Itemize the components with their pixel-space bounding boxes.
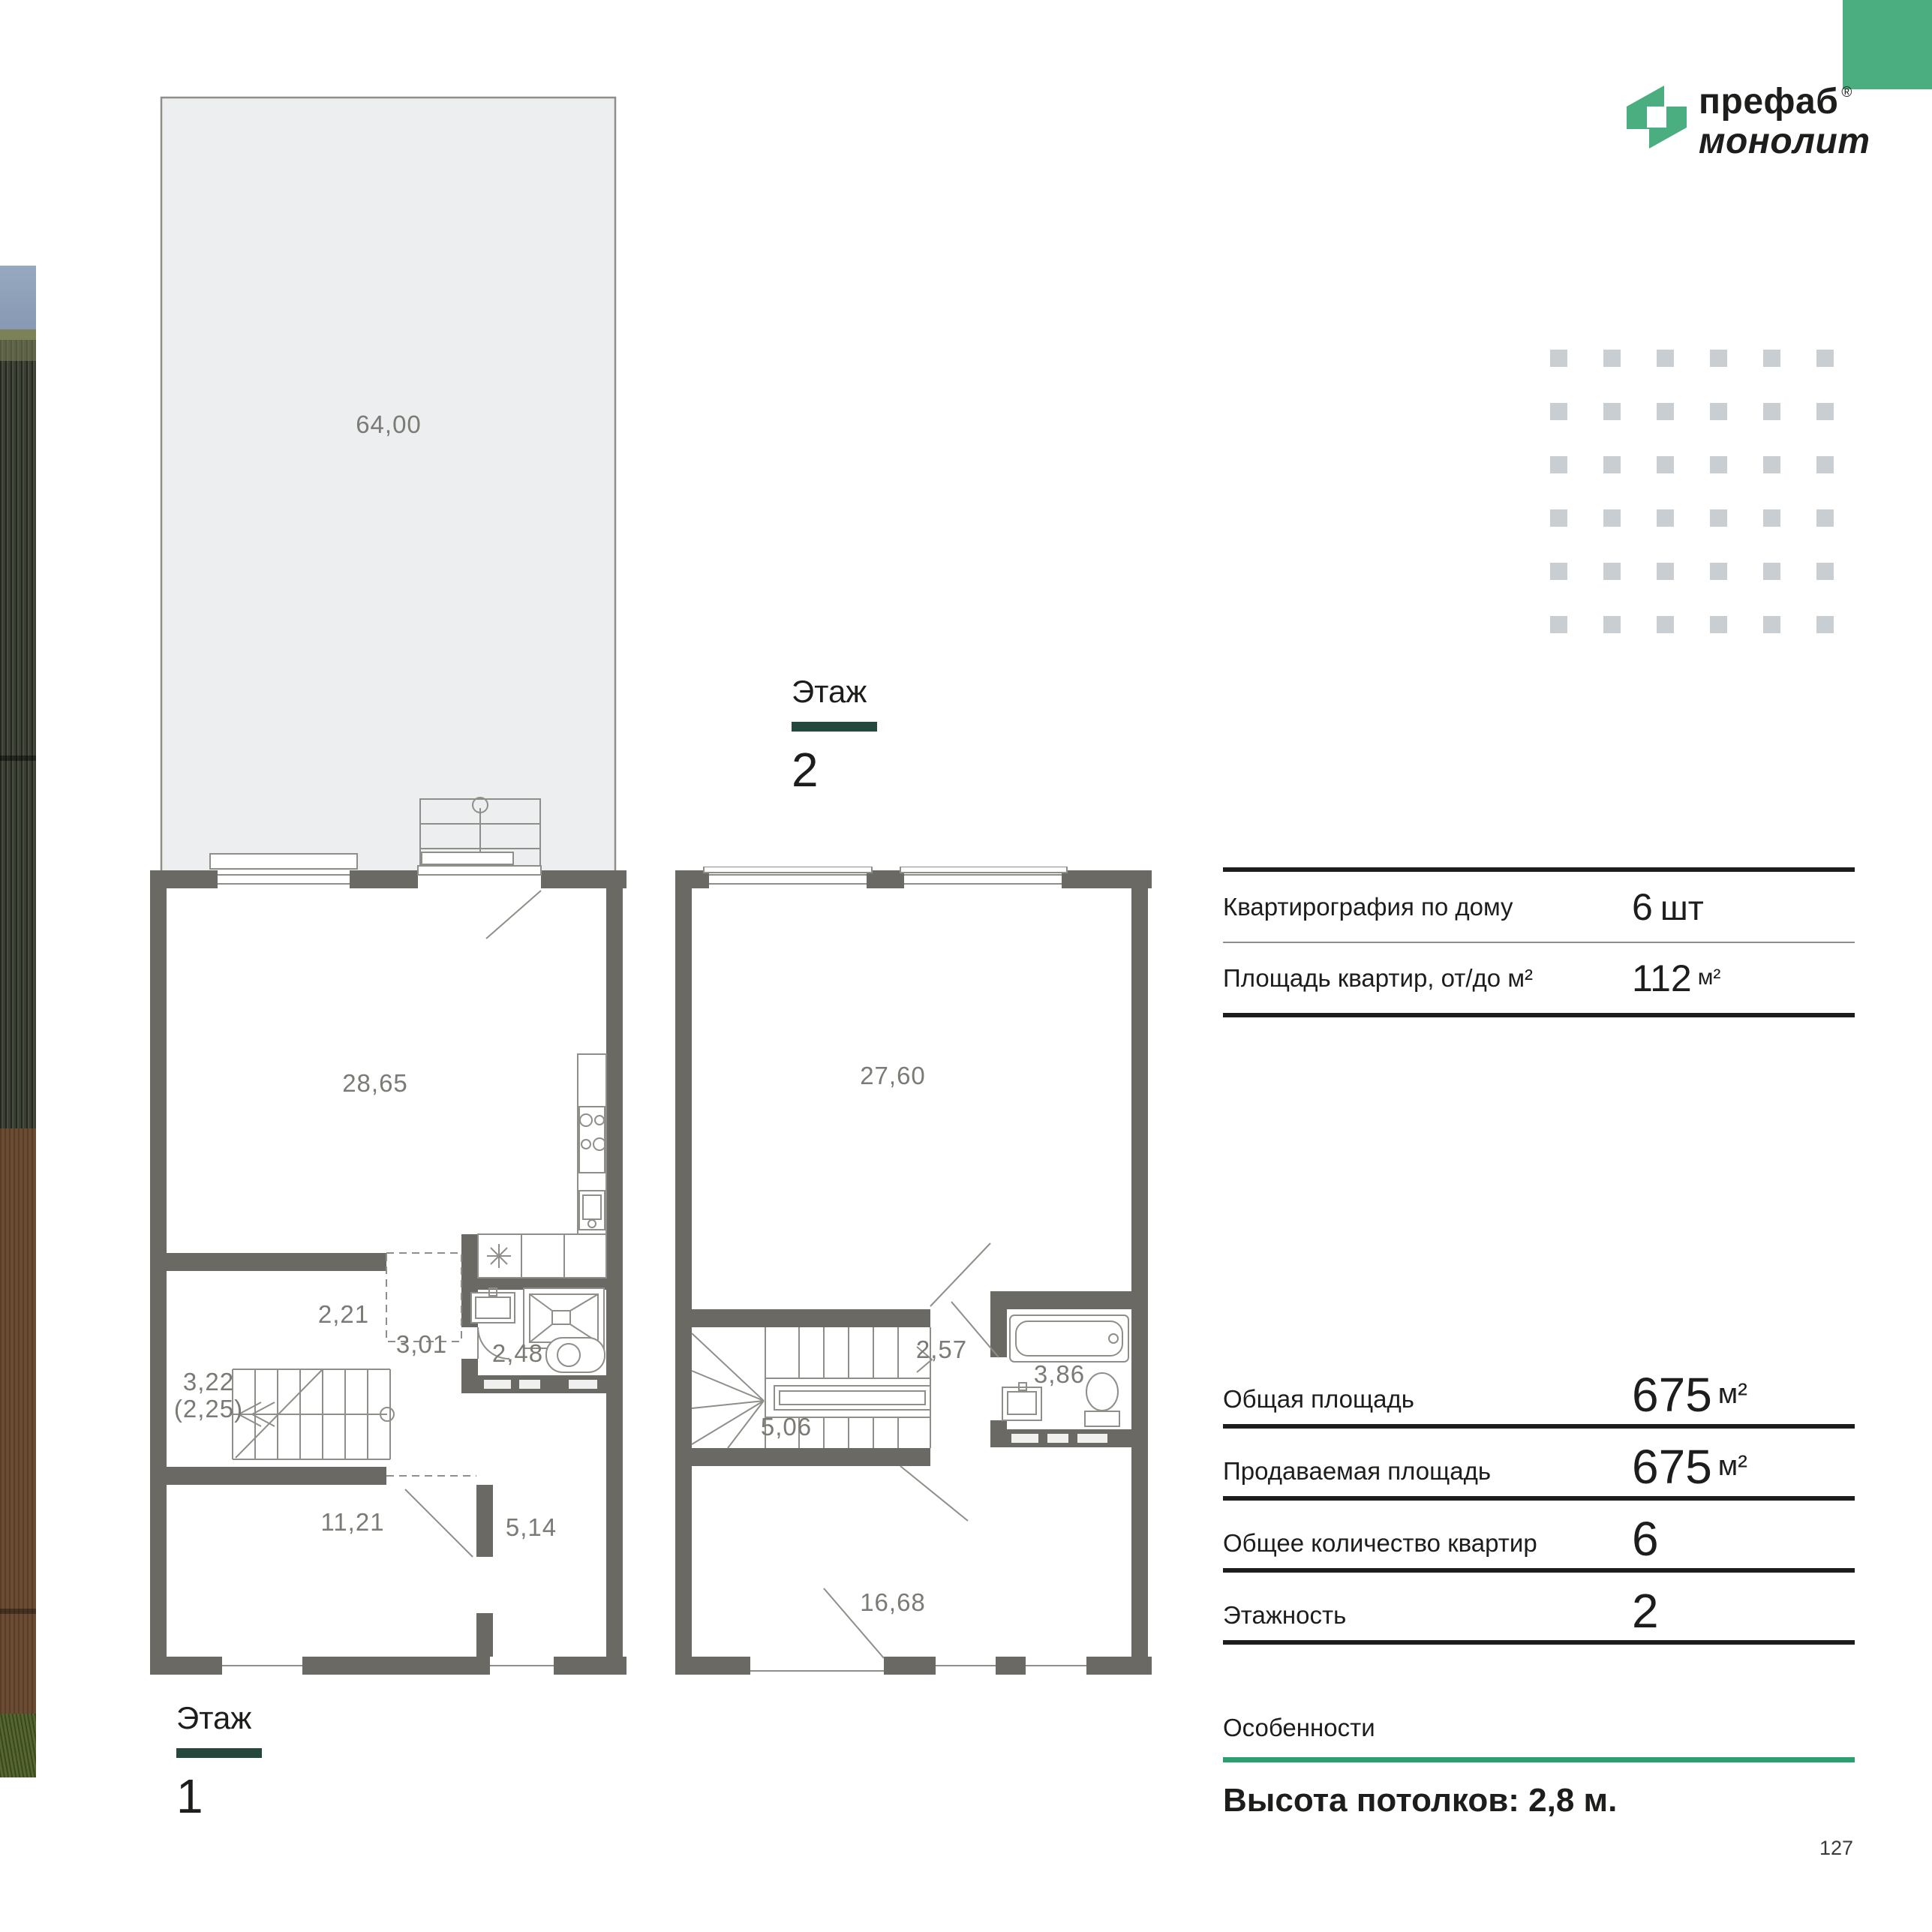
floor-1-underline [176, 1748, 262, 1758]
room-area-label: 2,57 [916, 1336, 967, 1363]
features-title: Особенности [1223, 1714, 1855, 1742]
dot-square [1603, 616, 1621, 633]
floor-2-underline [792, 722, 877, 732]
dot-square [1710, 563, 1727, 580]
brand-name-line2: монолит [1699, 124, 1870, 160]
spec-label: Продаваемая площадь [1223, 1457, 1632, 1490]
spec-label: Этажность [1223, 1601, 1632, 1634]
spec-row-sellable-area: Продаваемая площадь 675м² [1223, 1429, 1855, 1501]
plan-floor-1: 64,00 [150, 94, 626, 1677]
dot-square [1550, 616, 1567, 633]
room-area-label: 5,06 [761, 1413, 812, 1441]
dot-square [1550, 563, 1567, 580]
dot-square [1657, 509, 1674, 527]
spec-row-storeys: Этажность 2 [1223, 1573, 1855, 1645]
brand-logo: префаб® монолит [1627, 84, 1870, 160]
brand-logo-icon [1627, 84, 1687, 150]
dot-square [1816, 563, 1834, 580]
dot-square [1550, 403, 1567, 420]
dot-square [1816, 616, 1834, 633]
floor-label-title: Этаж [176, 1700, 262, 1736]
bathtub-icon [1010, 1315, 1128, 1362]
stove-icon [579, 1107, 605, 1173]
floor-label-title: Этаж [792, 674, 877, 710]
bath-sink-icon [471, 1288, 515, 1323]
spec-table-top: Квартирография по дому 6шт Площадь кварт… [1223, 867, 1855, 1017]
dot-square [1603, 403, 1621, 420]
room-area-label: 3,01 [396, 1330, 447, 1358]
plan-floor-2: 27,60 2,57 3,86 5,06 16,68 [675, 867, 1152, 1677]
dot-square [1550, 350, 1567, 367]
dot-square [1763, 456, 1780, 473]
features-underline [1223, 1757, 1855, 1762]
dot-square [1763, 403, 1780, 420]
dot-square [1763, 563, 1780, 580]
photo-grass [0, 1714, 36, 1777]
door-leaf-bedroom [900, 1466, 968, 1521]
windows-floor-2 [704, 867, 1086, 1675]
bath-sink-icon [1002, 1383, 1041, 1420]
dot-square [1710, 350, 1727, 367]
floor-2-number: 2 [792, 742, 877, 798]
room-area-label: 16,68 [860, 1588, 926, 1616]
entry-door-leaf [486, 891, 541, 939]
spec-label: Квартирография по дому [1223, 893, 1632, 921]
dot-square [1657, 616, 1674, 633]
dot-square [1816, 403, 1834, 420]
floor-1-number: 1 [176, 1768, 262, 1824]
spec-unit: м² [1718, 1450, 1747, 1482]
kitchen-column [578, 1054, 606, 1234]
spec-unit: м² [1718, 1378, 1747, 1410]
registered-mark: ® [1841, 85, 1852, 101]
dot-square [1550, 456, 1567, 473]
kitchen-counter [478, 1234, 606, 1278]
terrace-area-label: 64,00 [356, 410, 422, 438]
kitchen-sink-icon [579, 1191, 605, 1230]
dot-square [1816, 509, 1834, 527]
dot-square [1550, 509, 1567, 527]
room-area-label: 3,86 [1034, 1360, 1085, 1388]
room-area-label: 5,14 [506, 1513, 557, 1541]
terrace: 64,00 [161, 98, 615, 876]
dot-square [1710, 616, 1727, 633]
room-area-label: 28,65 [342, 1069, 408, 1097]
spec-row-flat-area: Площадь квартир, от/до м² 112м² [1223, 943, 1855, 1013]
spec-unit: м² [1698, 965, 1721, 990]
dot-square [1763, 616, 1780, 633]
stairs-floor-1 [233, 1369, 394, 1459]
spec-unit: шт [1660, 888, 1704, 927]
room-area-label: 3,22 [183, 1368, 234, 1396]
spec-value: 6 [1632, 886, 1653, 928]
floor-1-label: Этаж 1 [176, 1700, 262, 1824]
toilet-icon [1085, 1373, 1119, 1426]
dot-square [1710, 509, 1727, 527]
brand-corner-square [1843, 0, 1932, 89]
spec-row-flat-count: Квартирография по дому 6шт [1223, 872, 1855, 943]
photo-sky [0, 266, 36, 329]
spec-value: 6 [1632, 1512, 1659, 1566]
wall-shaft-slots [1011, 1434, 1107, 1443]
dot-square [1603, 456, 1621, 473]
dot-square [1657, 350, 1674, 367]
room-area-label: (2,25) [174, 1395, 243, 1423]
dot-square [1816, 456, 1834, 473]
dot-square [1763, 350, 1780, 367]
dot-square [1710, 403, 1727, 420]
page: префаб® монолит Этаж 2 Этаж 1 64,0 [0, 0, 1932, 1932]
open-passage [386, 1253, 461, 1342]
room-area-label: 2,21 [318, 1300, 369, 1328]
spec-label: Общее количество квартир [1223, 1529, 1632, 1562]
room-area-label: 11,21 [320, 1508, 384, 1536]
dot-square [1657, 456, 1674, 473]
dot-square [1816, 350, 1834, 367]
dot-square [1657, 563, 1674, 580]
dot-square [1603, 350, 1621, 367]
spec-table-main: Общая площадь 675м² Продаваемая площадь … [1223, 1357, 1855, 1645]
dot-square [1657, 403, 1674, 420]
dot-square [1710, 456, 1727, 473]
spec-row-flats-total: Общее количество квартир 6 [1223, 1501, 1855, 1573]
dots-pattern [1550, 350, 1834, 633]
floor-2-label: Этаж 2 [792, 674, 877, 798]
dot-square [1603, 563, 1621, 580]
door-leaf-room [405, 1489, 473, 1557]
spec-value: 112 [1632, 957, 1692, 999]
spec-value: 675 [1632, 1440, 1712, 1494]
spec-value: 675 [1632, 1368, 1712, 1422]
features-block: Особенности Высота потолков: 2,8 м. [1223, 1714, 1855, 1819]
page-number: 127 [1786, 1837, 1853, 1860]
features-text: Высота потолков: 2,8 м. [1223, 1782, 1855, 1819]
door-leaf-living [930, 1243, 990, 1306]
walls-floor-2 [675, 870, 1152, 1675]
spec-label: Площадь квартир, от/до м² [1223, 964, 1632, 993]
room-area-label: 2,48 [492, 1339, 543, 1367]
photo-facade [0, 329, 36, 1128]
photo-wood-siding [0, 1128, 36, 1714]
dot-square [1603, 509, 1621, 527]
spec-row-total-area: Общая площадь 675м² [1223, 1357, 1855, 1429]
brand-name-line1: префаб [1699, 82, 1838, 122]
room-area-label: 27,60 [860, 1062, 926, 1089]
spec-value: 2 [1632, 1584, 1659, 1638]
dot-square [1763, 509, 1780, 527]
building-photo [0, 266, 36, 1777]
spec-label: Общая площадь [1223, 1385, 1632, 1418]
toilet-icon [546, 1338, 605, 1372]
